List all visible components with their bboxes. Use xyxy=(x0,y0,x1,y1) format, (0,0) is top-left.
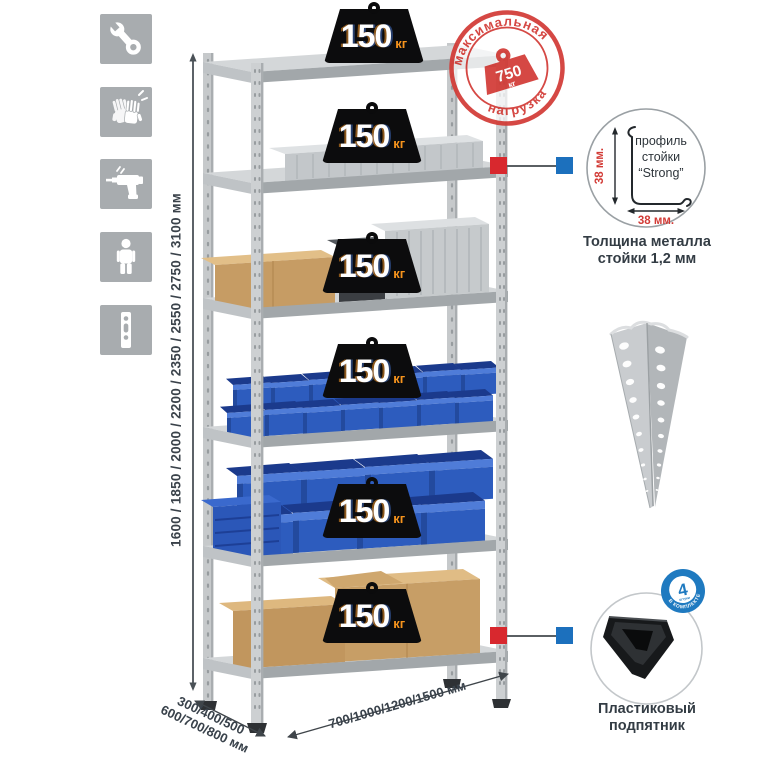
infographic-canvas: 1600 / 1850 / 2000 / 2200 / 2350 / 2550 … xyxy=(0,0,765,765)
svg-text:38 мм.: 38 мм. xyxy=(594,148,606,184)
connector-blue-square-top xyxy=(556,157,573,174)
person-icon xyxy=(100,232,152,282)
load-badge-shelf-2: 150кг xyxy=(322,102,422,163)
badge-ring xyxy=(366,477,378,489)
badge-ring xyxy=(366,582,378,594)
wrench-icon xyxy=(100,14,152,64)
perforated-upright-image xyxy=(597,310,702,520)
svg-text:профиль: профиль xyxy=(635,134,687,148)
connector-line-top xyxy=(505,165,558,167)
load-badge-shelf-6: 150кг xyxy=(322,582,422,643)
svg-text:38 мм.: 38 мм. xyxy=(638,215,674,227)
badge-ring xyxy=(366,232,378,244)
cardboard-box xyxy=(215,257,335,311)
connector-red-square-top xyxy=(490,157,507,174)
badge-ring xyxy=(366,337,378,349)
max-load-stamp: максимальная нагрузка 750 кг xyxy=(447,8,567,128)
quantity-badge: 4 штуки в комплекте xyxy=(660,568,706,614)
profile-detail-circle: 38 мм. 38 мм. профиль стойки “Strong” xyxy=(585,107,707,229)
load-badge-shelf-5: 150кг xyxy=(322,477,422,538)
gloves-icon xyxy=(100,87,152,137)
badge-ring xyxy=(368,2,380,14)
foot-caption: Пластиковый подпятник xyxy=(572,701,722,735)
connector-blue-square-bottom xyxy=(556,627,573,644)
profile-caption: Толщина металла стойки 1,2 мм xyxy=(572,234,722,268)
load-badge-shelf-1: 150кг xyxy=(324,2,424,63)
svg-text:“Strong”: “Strong” xyxy=(638,166,683,180)
upright-profile-icon xyxy=(100,305,152,355)
drill-icon xyxy=(100,159,152,209)
connector-red-square-bottom xyxy=(490,627,507,644)
svg-text:стойки: стойки xyxy=(642,150,680,164)
connector-line-bottom xyxy=(505,635,558,637)
height-dimension-label: 1600 / 1850 / 2000 / 2200 / 2350 / 2550 … xyxy=(169,193,184,547)
load-badge-shelf-4: 150кг xyxy=(322,337,422,398)
badge-ring xyxy=(366,102,378,114)
load-badge-shelf-3: 150кг xyxy=(322,232,422,293)
